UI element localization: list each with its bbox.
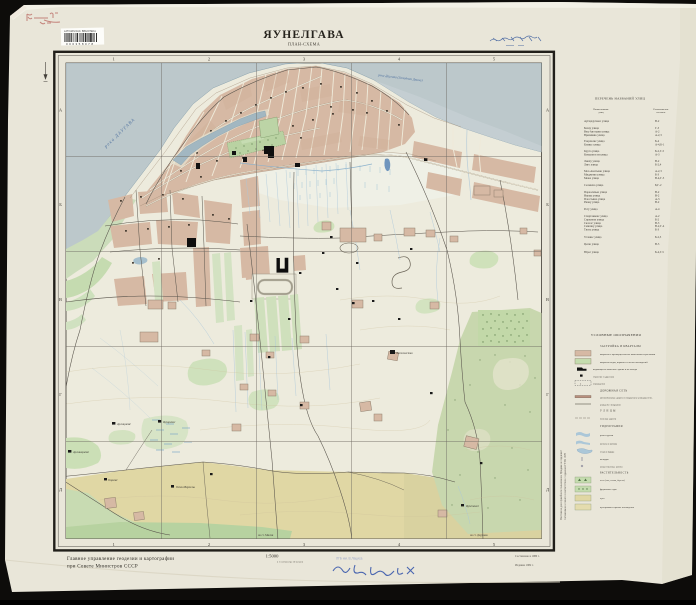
svg-text:Аугшюциемс: Аугшюциемс (72, 450, 90, 454)
svg-text:Аугшциемс: Аугшциемс (116, 422, 132, 426)
svg-text:А-4,Б-1: А-4,Б-1 (655, 142, 665, 146)
svg-text:Главное управление геодезии и: Главное управление геодезии и картографи… (67, 557, 174, 562)
svg-text:Оциемс: Оциемс (108, 478, 118, 482)
svg-text:Яунциемс: Яунциемс (162, 420, 176, 424)
svg-text:на ст. Даудзева: на ст. Даудзева (470, 534, 488, 537)
svg-text:Г: Г (546, 392, 549, 397)
svg-text:Межа улица: Межа улица (584, 176, 600, 180)
svg-text:озера и пруды: озера и пруды (600, 451, 615, 454)
svg-text:В-5: В-5 (655, 242, 660, 246)
svg-text:ЛГБ им. В.Лациса: ЛГБ им. В.Лациса (336, 557, 363, 561)
svg-text:Тилта улица: Тилта улица (584, 228, 600, 232)
svg-text:Комьюности улица: Комьюности улица (584, 152, 608, 156)
svg-text:улицы без покрытия: улицы без покрытия (600, 404, 622, 407)
svg-text:000358078: 000358078 (66, 42, 95, 46)
svg-text:леса (ель, сосна, береза): леса (ель, сосна, береза) (600, 479, 625, 482)
svg-text:А-3: А-3 (655, 152, 660, 156)
svg-text:2: 2 (208, 57, 210, 62)
svg-text:В-4,Г-5: В-4,Г-5 (655, 176, 665, 180)
svg-text:ограждения: ограждения (593, 383, 606, 386)
svg-text:улиц: улиц (598, 111, 604, 114)
svg-text:В-2: В-2 (655, 119, 660, 123)
svg-text:Юрас улица: Юрас улица (584, 250, 600, 254)
svg-text:Согласовано к печати в соответ: Согласовано к печати в соответствии с из… (564, 452, 567, 520)
svg-text:2: 2 (208, 542, 210, 547)
svg-text:каналы и канавы: каналы и канавы (600, 443, 617, 446)
svg-text:ЯУНЕЛГАВА: ЯУНЕЛГАВА (263, 29, 344, 41)
svg-text:А-4: А-4 (655, 207, 660, 211)
svg-text:Б-3: Б-3 (655, 228, 660, 232)
svg-text:В: В (546, 297, 549, 302)
svg-text:на ст. Мисни: на ст. Мисни (258, 534, 274, 537)
svg-text:В: В (59, 297, 62, 302)
svg-text:Селмалю улица: Селмалю улица (584, 183, 604, 187)
svg-text:автомобильные дороги с покрыти: автомобильные дороги с покрытием усоверш… (600, 397, 653, 400)
svg-text:на плане: на плане (656, 111, 666, 114)
svg-text:1:5000: 1:5000 (266, 554, 279, 559)
svg-text:кварталы садов, парков и зелен: кварталы садов, парков и зеленых насажде… (600, 361, 648, 364)
svg-text:LATVIJAS NAC. BIBLIOTEKA: LATVIJAS NAC. BIBLIOTEKA (64, 30, 96, 33)
svg-text:Яунсполес: Яунсполес (465, 504, 480, 508)
svg-text:Д: Д (546, 487, 549, 492)
svg-text:ЗАСТРОЙКА И КВАРТАЛЫ: ЗАСТРОЙКА И КВАРТАЛЫ (600, 345, 641, 348)
svg-text:УСЛОВНЫЕ ОБОЗНАЧЕНИЯ: УСЛОВНЫЕ ОБОЗНАЧЕНИЯ (591, 333, 642, 337)
svg-text:Целю улица: Целю улица (584, 242, 600, 246)
svg-text:Роту улица: Роту улица (584, 207, 598, 211)
svg-text:Б: Б (546, 202, 549, 207)
svg-text:Издание 1982 г.: Издание 1982 г. (515, 564, 534, 567)
svg-text:Г: Г (59, 392, 62, 397)
svg-text:при Совете Министров СССР: при Совете Министров СССР (67, 565, 138, 570)
svg-text:Лесничество: Лесничество (395, 351, 413, 355)
svg-text:Вризивню улица: Вризивню улица (584, 133, 605, 137)
svg-text:1: 1 (113, 57, 115, 62)
svg-text:В-2: В-2 (655, 200, 660, 204)
svg-text:Б-2,4: Б-2,4 (655, 162, 662, 166)
svg-text:строения с адресами: строения с адресами (593, 376, 615, 379)
svg-text:Постоянно для служебного польз: Постоянно для служебного пользования. Пр… (560, 449, 563, 520)
svg-text:РАСТИТЕЛЬНОСТЬ: РАСТИТЕЛЬНОСТЬ (600, 472, 629, 475)
svg-text:Д: Д (59, 487, 62, 492)
svg-text:А-2,3: А-2,3 (655, 133, 662, 137)
svg-text:Б-2,3: Б-2,3 (655, 235, 662, 239)
svg-text:фруктовые сады: фруктовые сады (600, 488, 617, 491)
svg-text:Аугшдаугавас улица: Аугшдаугавас улица (584, 119, 610, 123)
svg-text:Риану улица: Риану улица (584, 200, 600, 204)
svg-text:Б: Б (59, 202, 62, 207)
svg-text:Клявас улица: Клявас улица (584, 142, 601, 146)
svg-text:кустарники и прочие насажде: кустарники и прочие насаждения (600, 506, 635, 509)
svg-text:1: 1 (113, 542, 115, 547)
svg-text:реки и ручьи: реки и ручьи (600, 434, 614, 437)
svg-text:полевые дороги: полевые дороги (600, 418, 617, 421)
svg-text:ГИДРОГРАФИЯ: ГИДРОГРАФИЯ (600, 425, 623, 428)
svg-text:кварталы с преимущественно кам: кварталы с преимущественно каменными стр… (600, 353, 656, 356)
svg-text:в 1 сантиметре 50 метров: в 1 сантиметре 50 метров (277, 561, 304, 564)
svg-text:Б,Г-2: Б,Г-2 (655, 183, 662, 187)
svg-text:искусственные ключи: искусственные ключи (600, 466, 623, 469)
svg-text:Оскол Взрослы: Оскол Взрослы (176, 485, 195, 489)
svg-text:Уславас улица: Уславас улица (584, 235, 602, 239)
svg-text:колодцы: колодцы (600, 458, 609, 461)
svg-text:ПЛАН-СХЕМА: ПЛАН-СХЕМА (288, 42, 320, 47)
svg-text:Лиго улица: Лиго улица (584, 162, 599, 166)
svg-text:Составлено в 1980 г.: Составлено в 1980 г. (515, 555, 540, 558)
svg-text:Б-4,Г-5: Б-4,Г-5 (655, 250, 664, 254)
svg-text:ДОРОЖНАЯ СЕТЬ: ДОРОЖНАЯ СЕТЬ (600, 390, 627, 393)
svg-text:ПЕРЕЧЕНЬ НАЗВАНИЙ УЛИЦ: ПЕРЕЧЕНЬ НАЗВАНИЙ УЛИЦ (595, 96, 646, 101)
svg-text:У Л И Ц Ы: У Л И Ц Ы (600, 410, 616, 413)
svg-text:выдающиеся каменные здания и и: выдающиеся каменные здания и их номера (593, 368, 638, 371)
